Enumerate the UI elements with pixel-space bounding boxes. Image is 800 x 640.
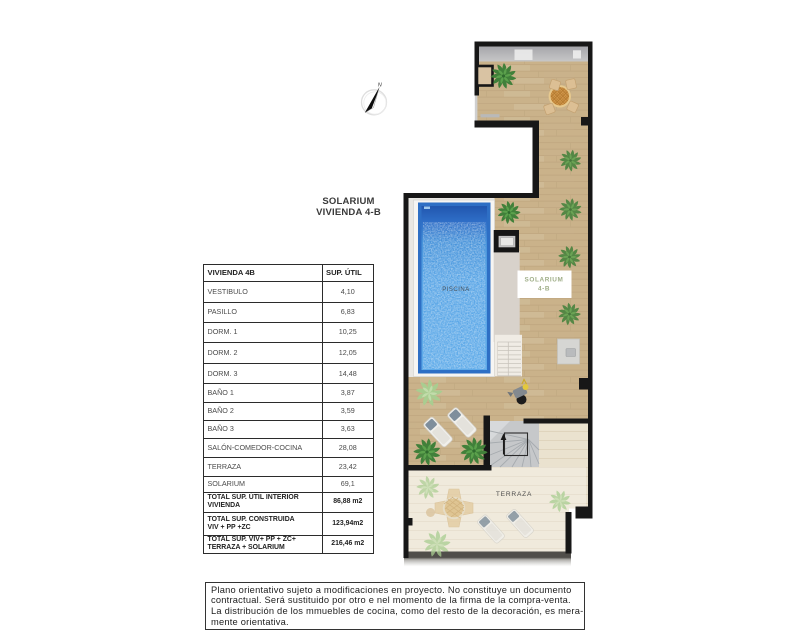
svg-text:N: N (378, 83, 383, 89)
svg-text:4-B: 4-B (538, 286, 550, 293)
svg-text:SOLARIUM: SOLARIUM (525, 277, 564, 284)
svg-text:PISCINA: PISCINA (442, 287, 470, 293)
svg-text:TERRAZA: TERRAZA (496, 491, 532, 498)
